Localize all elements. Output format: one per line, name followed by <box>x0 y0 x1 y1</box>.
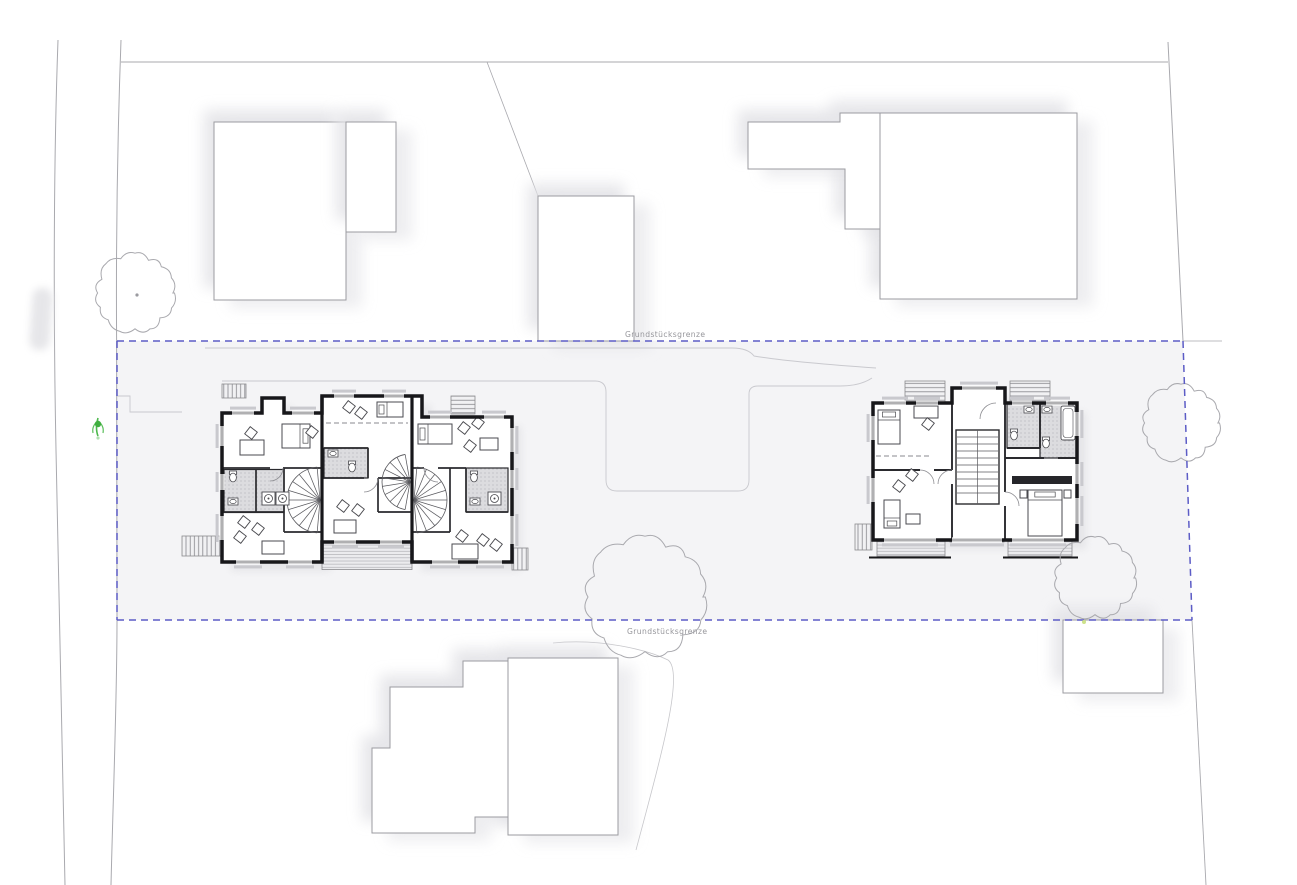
window-sill <box>1010 543 1066 546</box>
sink <box>228 498 238 505</box>
window-sill <box>950 543 1004 546</box>
washing-machine <box>488 492 501 505</box>
toilet <box>230 471 237 482</box>
table <box>452 544 478 559</box>
window <box>428 411 452 420</box>
bowl <box>1043 439 1050 448</box>
plant-icon <box>93 418 104 440</box>
window-gap <box>952 537 1002 542</box>
toilet <box>349 461 356 472</box>
bathroom <box>1007 404 1040 448</box>
window <box>1010 537 1066 546</box>
bed <box>1028 490 1062 536</box>
window-sill <box>515 426 518 454</box>
neighbor-building-north-footprint <box>538 196 634 341</box>
window-gap <box>1074 464 1079 484</box>
window-gap <box>288 559 312 564</box>
washer-dot <box>282 498 284 500</box>
window-sill <box>216 514 219 542</box>
window-gap <box>292 410 314 415</box>
pillow <box>887 521 897 526</box>
table <box>334 520 356 533</box>
window <box>914 397 940 406</box>
bathtub <box>1061 406 1075 440</box>
window-sill <box>515 514 518 546</box>
boundary-marker <box>1082 620 1086 624</box>
bowl <box>349 463 356 472</box>
window <box>882 397 908 406</box>
window <box>509 468 518 490</box>
window <box>1074 462 1083 486</box>
window-gap <box>219 474 224 490</box>
window-sill <box>1080 496 1083 526</box>
window-gap <box>384 393 404 398</box>
bowl <box>471 473 478 482</box>
toilet <box>1043 437 1050 448</box>
table <box>240 440 264 455</box>
boundary-label-bottom: Grundstücksgrenze <box>627 627 707 636</box>
window-sill <box>867 414 870 442</box>
table <box>906 514 920 524</box>
window <box>867 414 876 442</box>
window-gap <box>884 400 906 405</box>
side-steps <box>222 384 246 398</box>
parcel-line-southeast <box>1192 620 1206 885</box>
window-gap <box>870 478 875 502</box>
window-gap <box>1074 412 1079 436</box>
washer-dot <box>494 498 496 500</box>
wardrobe <box>1012 476 1072 484</box>
neighbor-building-southeast-footprint <box>1063 620 1163 693</box>
window <box>234 559 262 568</box>
toilet <box>471 471 478 482</box>
window-gap <box>478 559 502 564</box>
window-sill <box>332 545 358 548</box>
pillow <box>420 428 425 440</box>
window-sill <box>216 424 219 448</box>
window <box>332 390 356 399</box>
toilet <box>1011 429 1018 440</box>
window-gap <box>870 416 875 440</box>
balcony <box>877 541 945 556</box>
bed <box>418 424 452 444</box>
window-sill <box>515 468 518 490</box>
site-plan-drawing: Grundstücksgrenze Grundstücksgrenze <box>0 0 1297 885</box>
window-sill <box>1010 397 1034 400</box>
window-sill <box>286 565 314 568</box>
window-gap <box>232 410 254 415</box>
tree-canopy-icon <box>96 253 176 333</box>
table <box>480 438 498 450</box>
site-plan-canvas: Grundstücksgrenze Grundstücksgrenze <box>0 0 1297 885</box>
window-sill <box>960 382 998 385</box>
window <box>216 472 225 492</box>
window <box>382 390 406 399</box>
neighbor-building-north <box>528 184 650 349</box>
window-sill <box>332 390 356 393</box>
window-gap <box>1046 400 1068 405</box>
pillow <box>379 405 384 414</box>
window-gap <box>430 414 450 419</box>
window-sill <box>230 407 256 410</box>
sink <box>328 450 338 457</box>
pillow <box>882 412 895 417</box>
window-gap <box>219 426 224 446</box>
table <box>262 541 284 554</box>
window <box>509 426 518 454</box>
window-sill <box>428 411 452 414</box>
washing-machine <box>276 492 289 505</box>
table <box>1064 490 1071 498</box>
window <box>230 407 256 416</box>
straight-stair <box>956 430 999 504</box>
window-gap <box>962 385 996 390</box>
window-sill <box>476 565 504 568</box>
window-gap <box>509 516 514 544</box>
window-sill <box>430 565 460 568</box>
east-building-floor-plan <box>855 381 1086 558</box>
window-gap <box>509 428 514 452</box>
sink <box>470 498 480 505</box>
bed <box>377 402 403 417</box>
window <box>1044 397 1070 406</box>
boundary-label-top: Grundstücksgrenze <box>625 330 705 339</box>
window-sill <box>1080 462 1083 486</box>
window <box>290 407 316 416</box>
washer-dot <box>268 498 270 500</box>
side-steps <box>855 524 872 550</box>
parcel-line-northeast <box>1168 42 1183 341</box>
sink <box>1042 406 1052 413</box>
window-gap <box>509 470 514 488</box>
window-gap <box>334 539 356 544</box>
window-gap <box>484 414 504 419</box>
window-sill <box>216 472 219 492</box>
window <box>509 514 518 546</box>
bed <box>878 410 900 444</box>
bed <box>884 500 900 528</box>
window-gap <box>380 539 402 544</box>
window <box>1074 496 1083 526</box>
window-gap <box>1012 400 1032 405</box>
window-sill <box>867 476 870 504</box>
window-sill <box>382 390 406 393</box>
window-gap <box>236 559 260 564</box>
side-steps <box>512 548 528 570</box>
road-edge-outer <box>54 40 65 885</box>
window-sill <box>882 397 908 400</box>
neighbor-building-southeast <box>1053 608 1179 701</box>
bed <box>282 424 310 448</box>
tree-trunk <box>135 293 138 296</box>
table <box>914 406 938 418</box>
window-sill <box>290 407 316 410</box>
table <box>1020 490 1027 498</box>
washing-machine <box>262 492 275 505</box>
window-gap <box>219 516 224 540</box>
window <box>216 514 225 542</box>
window <box>867 476 876 504</box>
window <box>950 537 1004 546</box>
window-gap <box>1074 498 1079 524</box>
neighbor-building-northeast-footprint <box>748 113 1077 299</box>
window-sill <box>378 545 404 548</box>
neighbor-building-northwest-annex <box>336 110 412 240</box>
bowl <box>230 473 237 482</box>
window-gap <box>334 393 354 398</box>
window-sill <box>234 565 262 568</box>
neighbor-building-south <box>362 646 634 843</box>
neighbor-building-northwest-main-footprint <box>214 122 346 300</box>
window-sill <box>882 543 938 546</box>
window <box>286 559 314 568</box>
window <box>430 559 460 568</box>
tree-outline <box>96 253 176 333</box>
parcel-line-diagonal <box>487 62 538 196</box>
window-gap <box>884 537 936 542</box>
neighbor-building-northwest-annex-footprint <box>346 122 396 232</box>
neighbor-building-northeast <box>738 101 1093 307</box>
window <box>1074 410 1083 438</box>
bowl <box>1011 431 1018 440</box>
window <box>482 411 506 420</box>
parked-car <box>29 287 53 350</box>
window-sill <box>914 397 940 400</box>
window <box>476 559 504 568</box>
pillow <box>1035 492 1055 497</box>
window <box>378 539 404 548</box>
window <box>1010 397 1034 406</box>
window <box>216 424 225 448</box>
window-gap <box>1012 537 1064 542</box>
window-sill <box>1080 410 1083 438</box>
window-gap <box>916 400 938 405</box>
window-sill <box>1044 397 1070 400</box>
sink <box>1024 406 1034 413</box>
balcony <box>1008 541 1072 556</box>
window <box>332 539 358 548</box>
window-sill <box>482 411 506 414</box>
window <box>960 382 998 391</box>
window-gap <box>432 559 458 564</box>
entry-steps <box>451 396 475 414</box>
window <box>882 537 938 546</box>
